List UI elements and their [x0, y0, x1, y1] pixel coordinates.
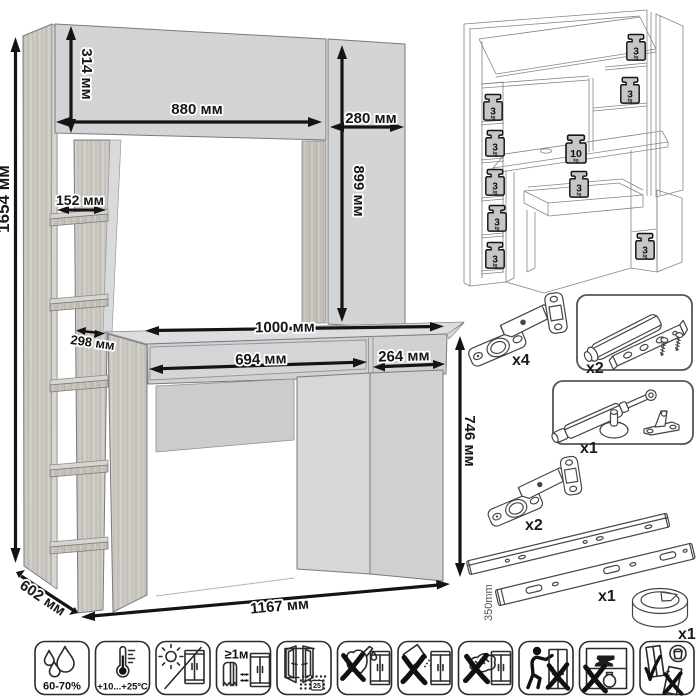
svg-text:kg: kg — [643, 254, 648, 259]
svg-text:x1: x1 — [678, 626, 696, 643]
svg-text:1167 мм: 1167 мм — [250, 595, 310, 617]
svg-text:1000 мм: 1000 мм — [255, 319, 315, 337]
svg-text:kg: kg — [573, 158, 579, 163]
svg-text:kg: kg — [495, 226, 500, 231]
svg-text:x1: x1 — [580, 440, 598, 457]
svg-text:kg: kg — [491, 115, 496, 120]
svg-text:x2: x2 — [586, 360, 604, 377]
svg-text:25: 25 — [313, 683, 321, 690]
svg-text:x4: x4 — [512, 352, 530, 369]
svg-text:kg: kg — [493, 151, 498, 156]
svg-text:x1: x1 — [598, 588, 616, 605]
svg-text:264 мм: 264 мм — [378, 347, 430, 365]
svg-text:kg: kg — [577, 192, 582, 197]
svg-text:602 мм: 602 мм — [16, 577, 68, 620]
svg-text:kg: kg — [493, 263, 498, 268]
svg-text:899 мм: 899 мм — [350, 165, 367, 216]
svg-text:314 мм: 314 мм — [78, 48, 95, 99]
svg-text:350mm: 350mm — [483, 584, 495, 621]
svg-text:880 мм: 880 мм — [171, 101, 222, 118]
svg-text:kg: kg — [493, 190, 498, 195]
svg-text:280 мм: 280 мм — [345, 110, 396, 127]
svg-text:746 мм: 746 мм — [461, 415, 478, 466]
svg-text:60-70%: 60-70% — [43, 681, 81, 693]
svg-text:kg: kg — [628, 98, 633, 103]
svg-text:1654 мм: 1654 мм — [0, 165, 13, 233]
svg-text:x2: x2 — [525, 517, 543, 534]
svg-text:152 мм: 152 мм — [56, 192, 104, 208]
svg-text:kg: kg — [634, 55, 639, 60]
svg-text:≥1м: ≥1м — [225, 647, 249, 662]
svg-text:694 мм: 694 мм — [235, 350, 287, 368]
svg-text:+10...+25ºC: +10...+25ºC — [97, 682, 148, 693]
